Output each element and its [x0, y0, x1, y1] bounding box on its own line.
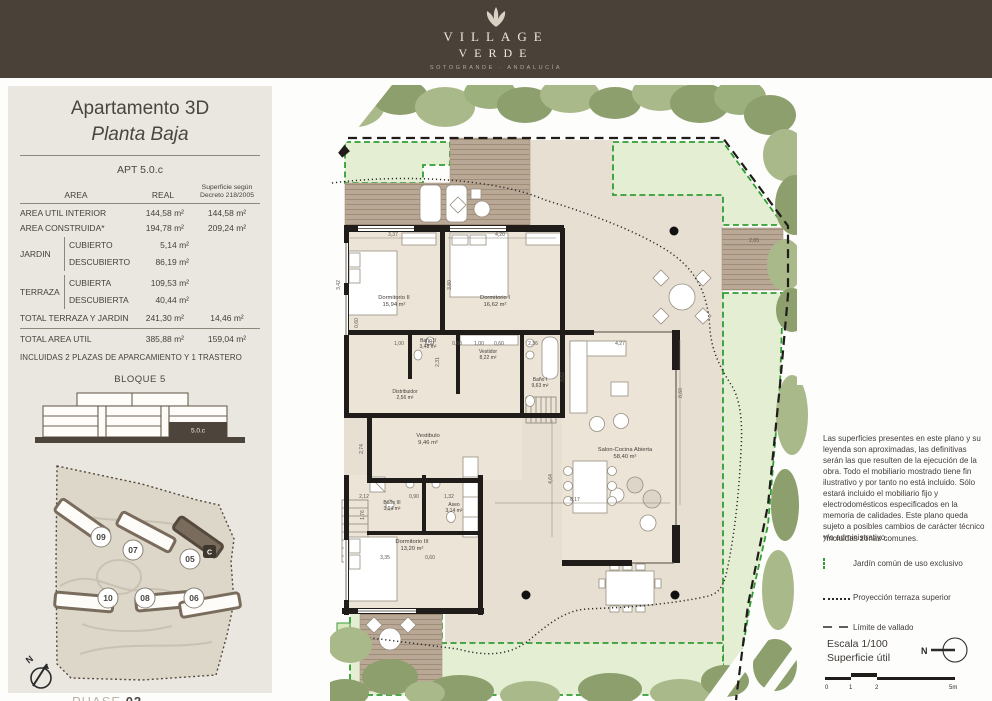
- header-bar: VILLAGE VERDE SOTOGRANDE · ANDALUCÍA: [0, 0, 992, 78]
- row-decreto: 159,04 m²: [194, 334, 260, 344]
- svg-text:Vestibulo9,46 m²: Vestibulo9,46 m²: [416, 433, 440, 446]
- brand-leaf-icon: [483, 7, 509, 27]
- group-label: TERRAZA: [20, 275, 64, 309]
- row-decreto: 14,46 m²: [194, 313, 260, 323]
- row-decreto: 209,24 m²: [194, 223, 260, 233]
- row-real: 194,78 m²: [132, 223, 194, 233]
- svg-text:3,80: 3,80: [447, 280, 453, 290]
- legend-label: Límite de vallado: [853, 623, 913, 633]
- building-elevation-diagram: 5.0.c: [35, 389, 245, 447]
- row-label: AREA UTIL INTERIOR: [20, 208, 132, 218]
- badge-10: 10: [103, 593, 113, 603]
- col-real: REAL: [132, 190, 194, 200]
- svg-text:Vestidor8,22 m²: Vestidor8,22 m²: [479, 349, 497, 361]
- badge-09: 09: [96, 532, 106, 542]
- divider: [20, 155, 260, 156]
- svg-text:3,42: 3,42: [336, 280, 342, 290]
- page-subtitle: Planta Baja: [20, 124, 260, 146]
- svg-text:0,60: 0,60: [354, 318, 360, 328]
- svg-text:1,50: 1,50: [424, 341, 434, 347]
- row-real: 144,58 m²: [132, 208, 194, 218]
- svg-text:2,65: 2,65: [749, 238, 759, 244]
- table-row-total-util: TOTAL AREA UTIL 385,88 m² 159,04 m²: [20, 329, 260, 344]
- svg-text:4,64: 4,64: [548, 474, 554, 484]
- legend-item-jardin: Jardín común de uso exclusivo: [823, 559, 963, 569]
- unit-marker-label: C: [207, 550, 212, 557]
- info-sidebar: Apartamento 3D Planta Baja APT 5.0.c ARE…: [8, 86, 272, 693]
- table-row-total-terraza: TOTAL TERRAZA Y JARDIN 241,30 m² 14,46 m…: [20, 309, 260, 324]
- areas-table-header: AREA REAL Superficie según Decreto 218/2…: [20, 184, 260, 204]
- tick-2: 2: [875, 685, 879, 691]
- row-label: TOTAL AREA UTIL: [20, 334, 132, 344]
- badge-05: 05: [185, 554, 195, 564]
- badge-08: 08: [140, 593, 150, 603]
- apartment-code: APT 5.0.c: [20, 164, 260, 176]
- dashed-line-icon: [823, 623, 851, 631]
- tick-1: 1: [849, 685, 853, 691]
- tick-0: 0: [825, 685, 829, 691]
- col-decreto: Superficie según Decreto 218/2005: [194, 184, 260, 200]
- svg-text:Dormitorio I16,62 m²: Dormitorio I16,62 m²: [480, 295, 510, 308]
- phase-word: PHASE: [72, 694, 121, 701]
- row-real: 241,30 m²: [132, 313, 194, 323]
- svg-text:2,12: 2,12: [359, 494, 369, 500]
- badge-06: 06: [189, 593, 199, 603]
- unit-label: 5.0.c: [191, 427, 206, 434]
- svg-text:1,00: 1,00: [394, 341, 404, 347]
- areas-table: AREA REAL Superficie según Decreto 218/2…: [20, 184, 260, 344]
- sub-label: CUBIERTA: [69, 278, 137, 288]
- svg-text:1,32: 1,32: [444, 494, 454, 500]
- svg-text:4,20: 4,20: [495, 232, 505, 238]
- floor-plan: Dormitorio II15,94 m² Dormitorio I16,62 …: [330, 85, 810, 701]
- legend-label: Jardín común de uso exclusivo: [853, 559, 963, 569]
- sub-real: 5,14 m²: [137, 240, 199, 250]
- row-label: AREA CONSTRUIDA*: [20, 223, 132, 233]
- legend-label: Proyección terraza superior: [853, 593, 951, 603]
- table-group-jardin: JARDIN CUBIERTO 5,14 m² DESCUBIERTO 86,1…: [20, 237, 260, 271]
- legend-item-vallado: Límite de vallado: [823, 623, 913, 633]
- notes-and-legend: Las superficies presentes en este plano …: [823, 433, 988, 543]
- group-label: JARDIN: [20, 237, 64, 271]
- brand-name-line1: VILLAGE: [443, 29, 548, 45]
- svg-text:Dormitorio II15,94 m²: Dormitorio II15,94 m²: [378, 295, 410, 308]
- svg-text:0,60: 0,60: [452, 341, 462, 347]
- svg-text:8,60: 8,60: [678, 388, 684, 398]
- sitemap-north-arrow-icon: N: [22, 650, 58, 694]
- garden-swatch-icon: [823, 558, 825, 569]
- phase-number: 02: [126, 694, 142, 701]
- svg-text:1,00: 1,00: [474, 341, 484, 347]
- brand-subtitle: SOTOGRANDE · ANDALUCÍA: [430, 65, 562, 71]
- svg-text:2,31: 2,31: [435, 357, 441, 367]
- scale-bar: 0 1 2 5m: [825, 671, 965, 697]
- svg-text:2,74: 2,74: [359, 444, 365, 454]
- north-letter: N: [24, 654, 35, 666]
- bloque-title: BLOQUE 5: [20, 374, 260, 385]
- svg-text:3,62: 3,62: [560, 372, 566, 382]
- tick-5m: 5m: [949, 685, 957, 691]
- sub-label: DESCUBIERTA: [69, 295, 137, 305]
- scale-title: Escala 1/100: [827, 637, 890, 651]
- svg-text:0,90: 0,90: [409, 494, 419, 500]
- badge-07: 07: [128, 545, 138, 555]
- site-boundary: [56, 466, 234, 680]
- svg-text:0,60: 0,60: [494, 341, 504, 347]
- sub-real: 86,19 m²: [137, 257, 199, 267]
- sub-label: CUBIERTO: [69, 240, 137, 250]
- legend-item-proyeccion: Proyección terraza superior: [823, 593, 951, 603]
- svg-text:3,37: 3,37: [388, 232, 398, 238]
- brand-name-line2: VERDE: [459, 46, 534, 61]
- table-group-terraza: TERRAZA CUBIERTA 109,53 m² DESCUBIERTA 4…: [20, 275, 260, 309]
- svg-text:Baño I9,63 m²: Baño I9,63 m²: [532, 377, 549, 389]
- table-row: AREA UTIL INTERIOR 144,58 m² 144,58 m²: [20, 204, 260, 219]
- svg-text:Baño III3,94 m²: Baño III3,94 m²: [383, 500, 400, 512]
- col-area: AREA: [20, 190, 132, 200]
- footnote: *Incluidas zonas comunes.: [823, 533, 918, 544]
- row-decreto: 144,58 m²: [194, 208, 260, 218]
- scale-note: Escala 1/100 Superficie útil: [827, 637, 890, 665]
- parking-note: INCLUIDAS 2 PLAZAS DE APARCAMIENTO Y 1 T…: [20, 353, 260, 362]
- north-arrow-icon: N: [919, 633, 971, 669]
- svg-text:4,27: 4,27: [615, 341, 625, 347]
- north-letter: N: [921, 646, 928, 656]
- page: { "header": { "brand_line1": "VILLAGE", …: [0, 0, 992, 701]
- row-real: 385,88 m²: [132, 334, 194, 344]
- page-title: Apartamento 3D: [20, 98, 260, 120]
- scale-subtitle: Superficie útil: [827, 651, 890, 665]
- row-label: TOTAL TERRAZA Y JARDIN: [20, 313, 132, 323]
- sub-label: DESCUBIERTO: [69, 257, 137, 267]
- dotted-line-icon: [823, 598, 850, 600]
- sub-real: 109,53 m²: [137, 278, 199, 288]
- table-row: AREA CONSTRUIDA* 194,78 m² 209,24 m²: [20, 218, 260, 233]
- disclaimer-text: Las superficies presentes en este plano …: [823, 433, 988, 543]
- phase-label: PHASE 02: [72, 694, 142, 701]
- svg-text:1,76: 1,76: [360, 510, 366, 520]
- svg-text:2,36: 2,36: [528, 341, 538, 347]
- sub-real: 40,44 m²: [137, 295, 199, 305]
- svg-text:3,35: 3,35: [380, 555, 390, 561]
- svg-text:0,60: 0,60: [425, 555, 435, 561]
- svg-text:8,17: 8,17: [570, 497, 580, 503]
